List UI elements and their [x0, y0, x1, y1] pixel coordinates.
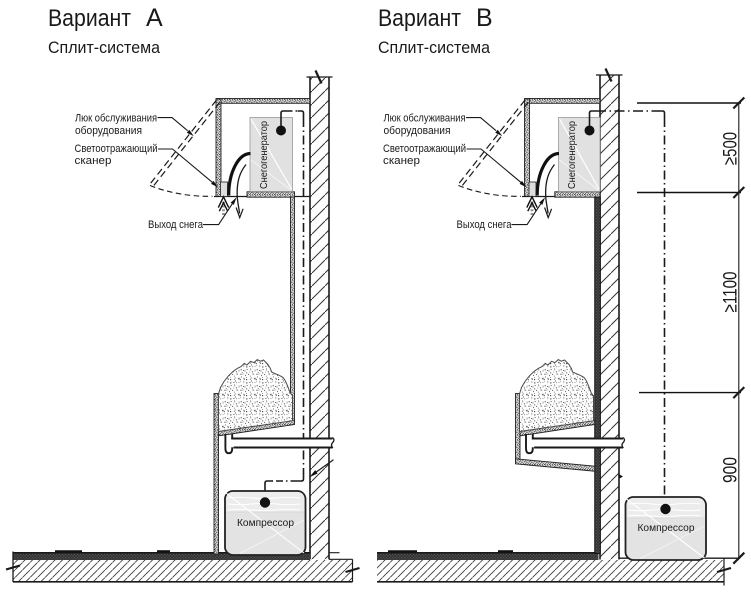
- svg-text:оборудования: оборудования: [384, 125, 451, 137]
- svg-text:Сплит-система: Сплит-система: [378, 38, 491, 57]
- svg-text:900: 900: [720, 457, 742, 483]
- svg-text:сканер: сканер: [383, 155, 420, 167]
- svg-text:Выход снега: Выход снега: [148, 219, 204, 231]
- svg-text:Снегогенератор: Снегогенератор: [566, 121, 578, 189]
- svg-text:≥1100: ≥1100: [720, 271, 742, 312]
- svg-text:Вариант: Вариант: [48, 5, 131, 32]
- svg-text:Компрессор: Компрессор: [638, 523, 695, 534]
- svg-text:оборудования: оборудования: [75, 125, 142, 137]
- svg-text:А: А: [146, 4, 163, 32]
- svg-text:Выход снега: Выход снега: [457, 219, 513, 231]
- svg-text:В: В: [476, 4, 493, 32]
- svg-text:Люк обслуживания: Люк обслуживания: [384, 113, 466, 125]
- svg-text:Светоотражающий: Светоотражающий: [383, 143, 466, 155]
- svg-text:Сплит-система: Сплит-система: [48, 38, 161, 57]
- svg-text:Компрессор: Компрессор: [237, 518, 294, 529]
- svg-text:Люк обслуживания: Люк обслуживания: [75, 113, 157, 125]
- svg-text:сканер: сканер: [75, 155, 112, 167]
- svg-text:Светоотражающий: Светоотражающий: [75, 143, 158, 155]
- svg-text:≥500: ≥500: [720, 132, 742, 165]
- svg-text:Вариант: Вариант: [378, 5, 461, 32]
- svg-text:Снегогенератор: Снегогенератор: [258, 121, 270, 189]
